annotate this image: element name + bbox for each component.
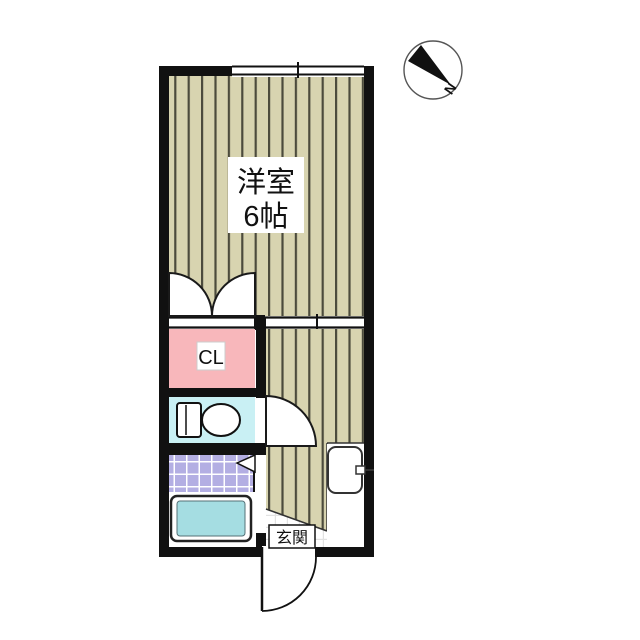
window xyxy=(232,62,364,78)
north-compass: N xyxy=(404,41,462,99)
wall-toilet-bath xyxy=(159,443,266,455)
toilet-fixture xyxy=(177,403,240,437)
svg-text:玄関: 玄関 xyxy=(276,529,308,547)
partition-wall-lower xyxy=(256,533,266,547)
floor-plan: CL 洋室 6帖 xyxy=(0,0,640,640)
svg-text:洋室: 洋室 xyxy=(237,166,295,199)
western-room-label: 洋室 6帖 xyxy=(228,157,304,233)
floor-plan-page: CL 洋室 6帖 xyxy=(0,0,640,640)
entrance-door xyxy=(262,546,316,611)
wall-cl-toilet xyxy=(159,388,266,397)
bathtub xyxy=(169,492,255,547)
closet-label: CL xyxy=(197,342,225,370)
svg-text:6帖: 6帖 xyxy=(243,200,288,233)
entrance-label: 玄関 xyxy=(269,525,315,548)
partition-wall-upper xyxy=(256,318,266,398)
bathroom-floor xyxy=(169,455,253,492)
svg-text:CL: CL xyxy=(198,347,224,369)
bathroom-door-gap xyxy=(255,455,266,533)
